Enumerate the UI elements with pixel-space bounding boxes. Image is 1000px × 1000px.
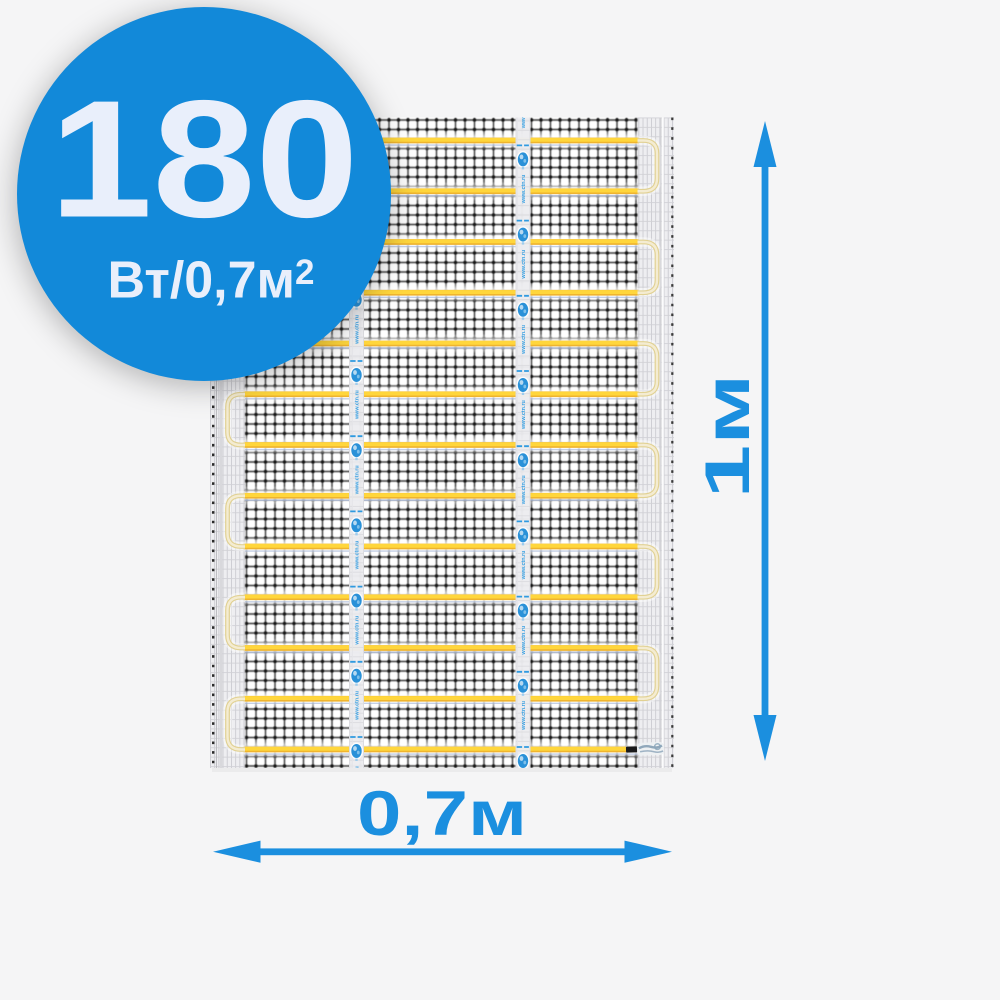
svg-text:www.ctn.ru: www.ctn.ru: [521, 325, 527, 355]
svg-text:www.ctn.ru: www.ctn.ru: [521, 250, 527, 280]
svg-text:0,7м: 0,7м: [357, 779, 527, 849]
svg-text:www.ctn.ru: www.ctn.ru: [521, 551, 527, 581]
svg-text:180: 180: [50, 67, 359, 253]
svg-text:Вт/0,7м2: Вт/0,7м2: [107, 252, 314, 310]
svg-text:www.ctn.ru: www.ctn.ru: [521, 475, 527, 505]
svg-text:www.ctn.ru: www.ctn.ru: [355, 315, 361, 345]
svg-text:1м: 1м: [693, 374, 763, 499]
svg-text:www.ctn.ru: www.ctn.ru: [521, 175, 527, 205]
svg-text:www.ctn.ru: www.ctn.ru: [355, 390, 361, 420]
svg-text:www.ctn.ru: www.ctn.ru: [521, 701, 527, 731]
svg-text:www.ctn.ru: www.ctn.ru: [521, 400, 527, 430]
svg-text:www.ctn.ru: www.ctn.ru: [355, 541, 361, 571]
svg-text:www.ctn.ru: www.ctn.ru: [355, 465, 361, 495]
svg-text:www.ctn.ru: www.ctn.ru: [355, 616, 361, 646]
svg-text:www.ctn.ru: www.ctn.ru: [355, 691, 361, 721]
svg-text:www.ctn.ru: www.ctn.ru: [521, 626, 527, 656]
